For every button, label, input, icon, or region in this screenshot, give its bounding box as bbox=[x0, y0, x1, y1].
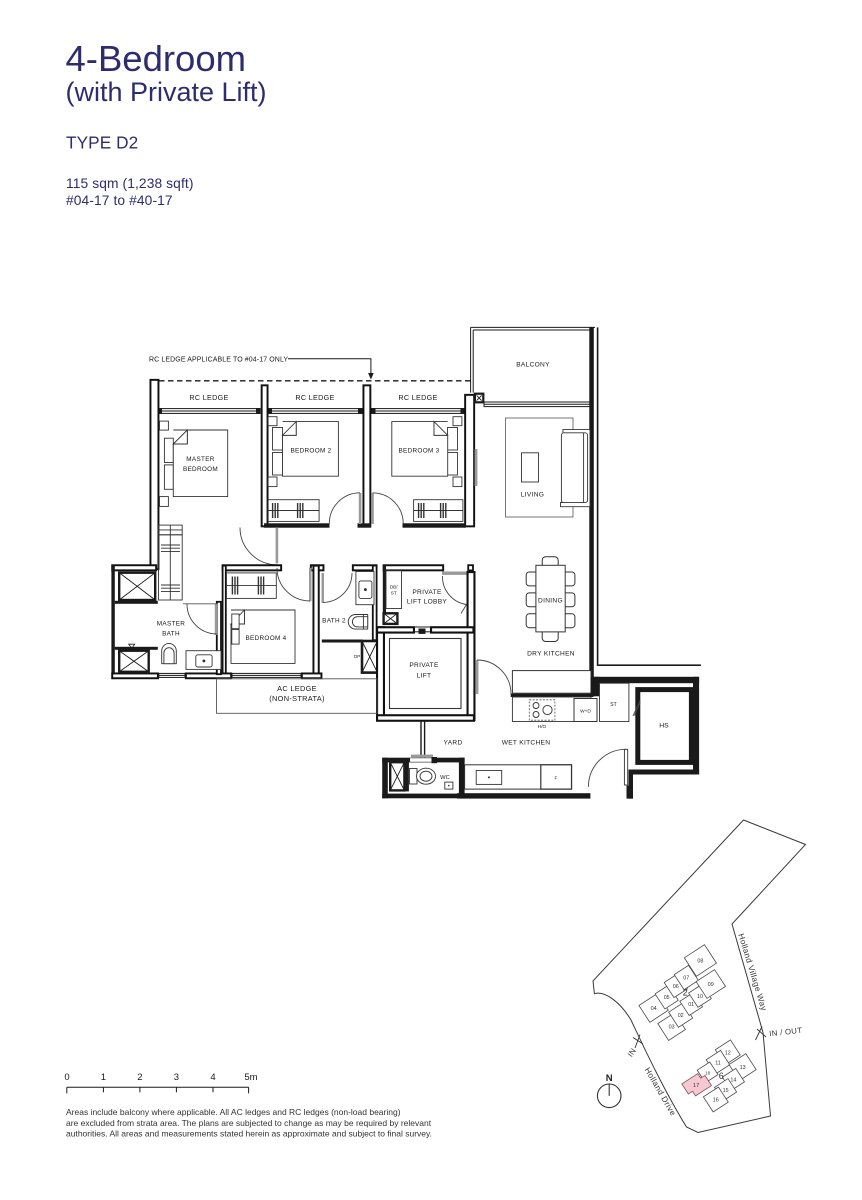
svg-text:DP: DP bbox=[354, 654, 360, 659]
svg-text:MASTER: MASTER bbox=[157, 621, 186, 628]
svg-text:115 sqm (1,238 sqft): 115 sqm (1,238 sqft) bbox=[66, 176, 194, 191]
svg-text:DRY KITCHEN: DRY KITCHEN bbox=[527, 651, 575, 658]
svg-text:06: 06 bbox=[673, 984, 679, 990]
svg-text:10: 10 bbox=[697, 994, 703, 1000]
svg-text:HS: HS bbox=[659, 723, 669, 730]
svg-text:02: 02 bbox=[678, 1013, 684, 1019]
svg-text:BALCONY: BALCONY bbox=[516, 362, 550, 369]
svg-text:BEDROOM: BEDROOM bbox=[183, 466, 218, 473]
svg-text:5m: 5m bbox=[244, 1072, 257, 1083]
svg-text:4-Bedroom: 4-Bedroom bbox=[66, 38, 247, 79]
svg-text:14: 14 bbox=[730, 1078, 736, 1084]
svg-text:01: 01 bbox=[688, 1002, 694, 1008]
svg-text:Areas include balcony where ap: Areas include balcony where applicable. … bbox=[66, 1107, 401, 1117]
svg-text:WET KITCHEN: WET KITCHEN bbox=[502, 740, 551, 747]
svg-text:WC: WC bbox=[440, 775, 450, 781]
svg-text:4: 4 bbox=[210, 1072, 215, 1083]
svg-text:DB/: DB/ bbox=[390, 585, 398, 590]
svg-text:05: 05 bbox=[664, 995, 670, 1001]
svg-text:#04-17 to #40-17: #04-17 to #40-17 bbox=[66, 193, 173, 208]
svg-text:6: 6 bbox=[719, 1071, 724, 1081]
svg-text:PRIVATE: PRIVATE bbox=[412, 589, 442, 596]
svg-text:TYPE D2: TYPE D2 bbox=[66, 133, 138, 153]
svg-text:RC LEDGE: RC LEDGE bbox=[189, 393, 228, 402]
svg-text:YARD: YARD bbox=[443, 740, 462, 747]
svg-text:RC LEDGE: RC LEDGE bbox=[398, 393, 437, 402]
svg-text:(NON-STRATA): (NON-STRATA) bbox=[269, 694, 324, 703]
svg-text:AC LEDGE: AC LEDGE bbox=[277, 684, 317, 693]
svg-text:(with Private Lift): (with Private Lift) bbox=[66, 77, 267, 107]
svg-text:F: F bbox=[555, 776, 558, 782]
svg-text:12: 12 bbox=[725, 1051, 731, 1057]
svg-text:ST: ST bbox=[391, 591, 397, 596]
svg-text:H/O: H/O bbox=[538, 724, 547, 730]
svg-text:2: 2 bbox=[683, 988, 688, 998]
svg-text:09: 09 bbox=[708, 982, 714, 988]
svg-text:07: 07 bbox=[683, 976, 689, 982]
svg-text:are excluded from strata area.: are excluded from strata area. The plans… bbox=[66, 1118, 432, 1128]
svg-text:DINING: DINING bbox=[538, 597, 563, 604]
svg-text:W+D: W+D bbox=[580, 709, 591, 715]
svg-text:ST: ST bbox=[610, 702, 616, 708]
svg-text:16: 16 bbox=[713, 1098, 719, 1104]
svg-text:BATH 2: BATH 2 bbox=[322, 617, 346, 624]
svg-text:BEDROOM 4: BEDROOM 4 bbox=[245, 635, 286, 642]
svg-text:1: 1 bbox=[101, 1072, 106, 1083]
svg-text:BEDROOM 2: BEDROOM 2 bbox=[290, 447, 331, 454]
svg-text:LIFT: LIFT bbox=[417, 673, 432, 680]
svg-text:RC LEDGE: RC LEDGE bbox=[295, 393, 334, 402]
svg-text:17: 17 bbox=[693, 1083, 699, 1089]
svg-text:authorities. All areas and mea: authorities. All areas and measurements … bbox=[66, 1129, 432, 1139]
svg-text:LIVING: LIVING bbox=[521, 492, 544, 499]
svg-text:03: 03 bbox=[669, 1025, 675, 1031]
svg-text:LIFT LOBBY: LIFT LOBBY bbox=[407, 599, 448, 606]
svg-text:15: 15 bbox=[723, 1088, 729, 1094]
svg-text:RC LEDGE APPLICABLE TO #04-17: RC LEDGE APPLICABLE TO #04-17 ONLY bbox=[149, 357, 288, 364]
svg-text:18: 18 bbox=[705, 1070, 711, 1075]
svg-text:PRIVATE: PRIVATE bbox=[409, 662, 439, 669]
svg-text:2: 2 bbox=[137, 1072, 142, 1083]
svg-text:BATH: BATH bbox=[162, 630, 180, 637]
svg-text:11: 11 bbox=[715, 1060, 721, 1066]
svg-text:04: 04 bbox=[651, 1006, 657, 1012]
svg-text:MASTER: MASTER bbox=[186, 456, 215, 463]
svg-text:N: N bbox=[606, 1073, 613, 1084]
svg-text:BEDROOM 3: BEDROOM 3 bbox=[398, 447, 439, 454]
svg-text:08: 08 bbox=[697, 959, 703, 965]
svg-text:0: 0 bbox=[64, 1072, 69, 1083]
svg-text:3: 3 bbox=[174, 1072, 179, 1083]
svg-text:13: 13 bbox=[740, 1065, 746, 1071]
